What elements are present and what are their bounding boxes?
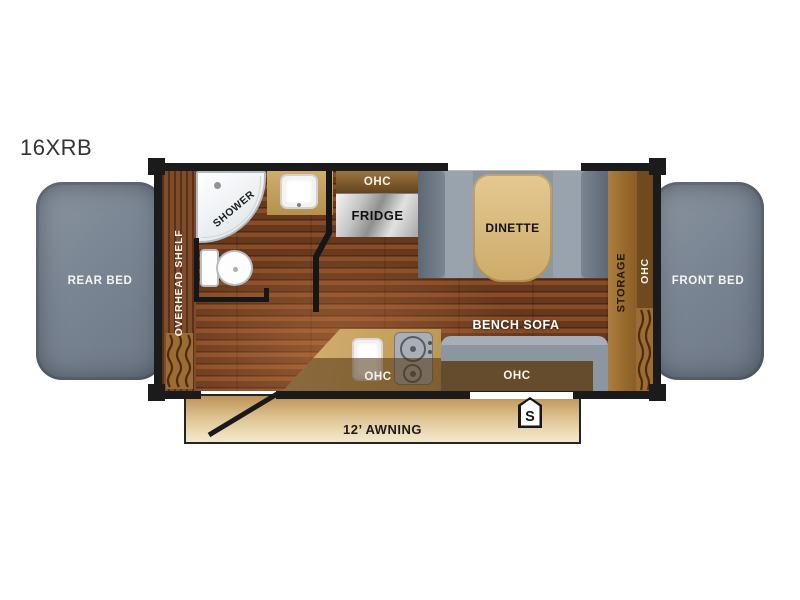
ohc-sofa-label: OHC <box>503 370 530 382</box>
toilet-flush-icon <box>233 267 238 272</box>
rear-bed-label: REAR BED <box>68 275 133 287</box>
wall-left <box>154 163 162 399</box>
overhead-shelf-label: OVERHEAD SHELF <box>173 203 187 363</box>
dinette-backrest-left <box>418 171 445 278</box>
cabinet-curtain-pattern <box>636 308 653 392</box>
window-top <box>448 163 581 171</box>
ohc-counter-label: OHC <box>364 371 391 383</box>
front-bed: FRONT BED <box>652 182 764 380</box>
dinette-backrest-right <box>581 171 608 278</box>
stove-knob <box>428 350 432 354</box>
s-utility-label: S <box>521 400 540 426</box>
dinette-label: DINETTE <box>485 221 539 235</box>
ohc-over-fridge: OHC <box>336 171 419 193</box>
ohc-over-sofa: OHC <box>441 361 593 391</box>
dinette-seat-right <box>553 171 581 278</box>
rear-bed: REAR BED <box>36 182 164 380</box>
model-number: 16XRB <box>20 135 140 159</box>
faucet-icon <box>297 203 301 207</box>
awning-label: 12’ AWNING <box>343 422 422 442</box>
dinette-table: DINETTE <box>473 174 552 282</box>
wall-bottom-right <box>276 391 661 399</box>
wall-right <box>653 163 661 399</box>
wall-corner <box>148 158 165 175</box>
wall-corner <box>649 384 666 401</box>
front-bed-label: FRONT BED <box>672 275 744 287</box>
window-bottom <box>470 392 573 399</box>
ohc-right-label: OHC <box>639 241 651 301</box>
wall-corner <box>148 384 165 401</box>
fridge-label: FRIDGE <box>351 208 403 223</box>
refrigerator: FRIDGE <box>336 193 419 237</box>
wall-corner <box>649 158 666 175</box>
wall-top <box>154 163 661 171</box>
rv-floorplan: 16XRB REAR BED FRONT BED 12’ AWNING OVER… <box>0 0 800 600</box>
bench-sofa-label: BENCH SOFA <box>446 318 586 332</box>
ohc-over-fridge-label: OHC <box>364 176 391 188</box>
stove-knob <box>428 341 432 345</box>
shower-head-icon <box>214 182 221 189</box>
dinette-seat-left <box>445 171 473 278</box>
storage-label: STORAGE <box>616 243 629 323</box>
